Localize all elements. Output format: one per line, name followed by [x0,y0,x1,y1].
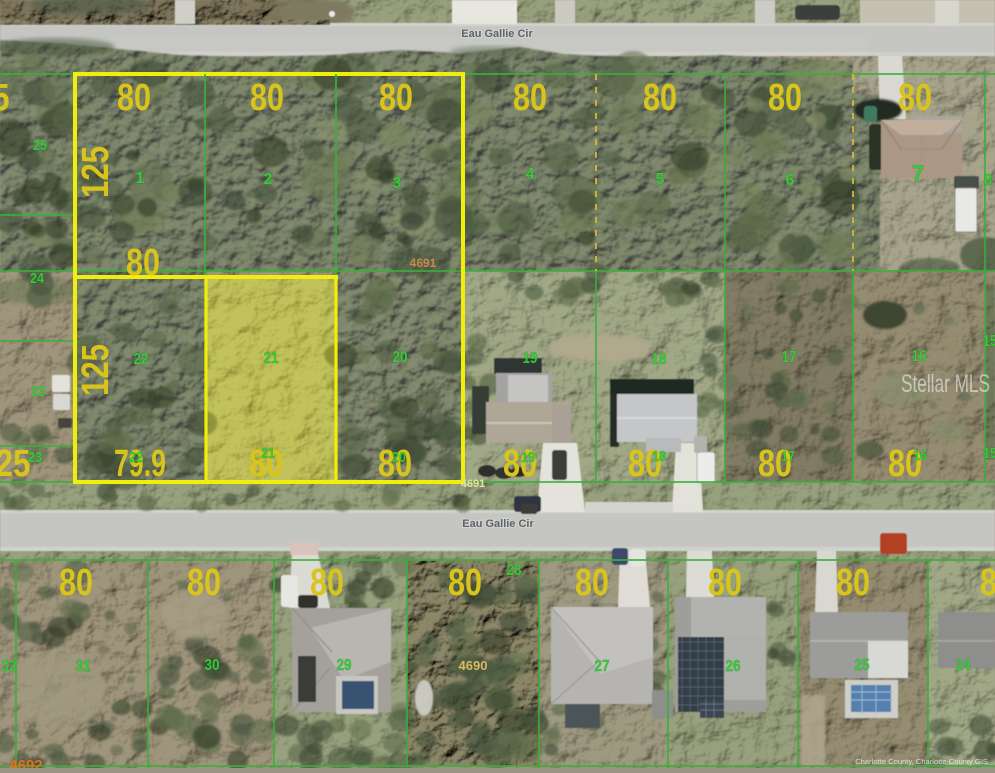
svg-text:32: 32 [2,658,17,675]
svg-text:2: 2 [264,171,273,188]
svg-text:Eau Gallie Cir: Eau Gallie Cir [462,518,534,530]
svg-text:80: 80 [708,562,742,604]
svg-text:7: 7 [912,161,924,186]
svg-text:18: 18 [652,351,667,368]
svg-text:125: 125 [75,146,117,198]
svg-text:25: 25 [0,443,31,485]
svg-text:Stellar MLS: Stellar MLS [901,370,990,398]
svg-text:19: 19 [521,449,535,466]
svg-text:4690: 4690 [459,658,488,673]
svg-text:17: 17 [782,349,797,366]
svg-text:80: 80 [643,77,677,119]
svg-text:5: 5 [656,171,665,188]
svg-text:24: 24 [956,657,971,674]
svg-text:24: 24 [30,270,45,287]
svg-text:125: 125 [75,344,117,396]
svg-text:27: 27 [595,658,610,675]
svg-text:8: 8 [984,172,993,189]
svg-text:80: 80 [980,562,995,604]
svg-text:28: 28 [507,562,522,579]
svg-text:5: 5 [0,77,10,119]
svg-text:4692: 4692 [9,757,42,768]
svg-text:21: 21 [261,445,275,462]
svg-text:29: 29 [337,657,352,674]
svg-text:25: 25 [33,137,47,154]
svg-text:30: 30 [205,657,220,674]
svg-text:80: 80 [117,77,151,119]
svg-text:15: 15 [983,333,995,350]
svg-text:Charlotte County, Charlotte Co: Charlotte County, Charlotte County GIS [855,757,988,766]
svg-text:15: 15 [983,445,995,462]
svg-text:80: 80 [768,77,802,119]
svg-text:20: 20 [392,449,406,466]
svg-text:18: 18 [652,448,666,465]
svg-text:4691: 4691 [461,478,485,490]
svg-text:22: 22 [134,351,149,368]
svg-text:16: 16 [913,447,927,464]
svg-text:80: 80 [250,77,284,119]
svg-text:22: 22 [129,449,143,466]
svg-text:1: 1 [136,170,145,187]
svg-text:80: 80 [836,562,870,604]
svg-text:19: 19 [523,350,538,367]
svg-text:31: 31 [76,658,91,675]
svg-text:Eau Gallie Cir: Eau Gallie Cir [461,28,533,40]
svg-text:23: 23 [31,383,45,400]
svg-text:80: 80 [310,562,344,604]
svg-text:20: 20 [393,349,408,366]
svg-text:21: 21 [264,350,279,367]
svg-text:17: 17 [781,448,795,465]
svg-text:3: 3 [393,175,402,192]
svg-text:80: 80 [448,562,482,604]
svg-text:80: 80 [187,562,221,604]
svg-text:80: 80 [513,77,547,119]
svg-text:16: 16 [912,348,927,365]
svg-text:6: 6 [786,172,795,189]
svg-text:25: 25 [855,657,870,674]
svg-text:23: 23 [28,449,42,466]
svg-text:4: 4 [526,166,535,183]
svg-text:80: 80 [59,562,93,604]
svg-text:80: 80 [898,77,932,119]
svg-text:80: 80 [379,77,413,119]
svg-text:26: 26 [726,658,741,675]
svg-text:4691: 4691 [410,256,437,270]
svg-text:80: 80 [126,242,160,284]
svg-text:80: 80 [575,562,609,604]
